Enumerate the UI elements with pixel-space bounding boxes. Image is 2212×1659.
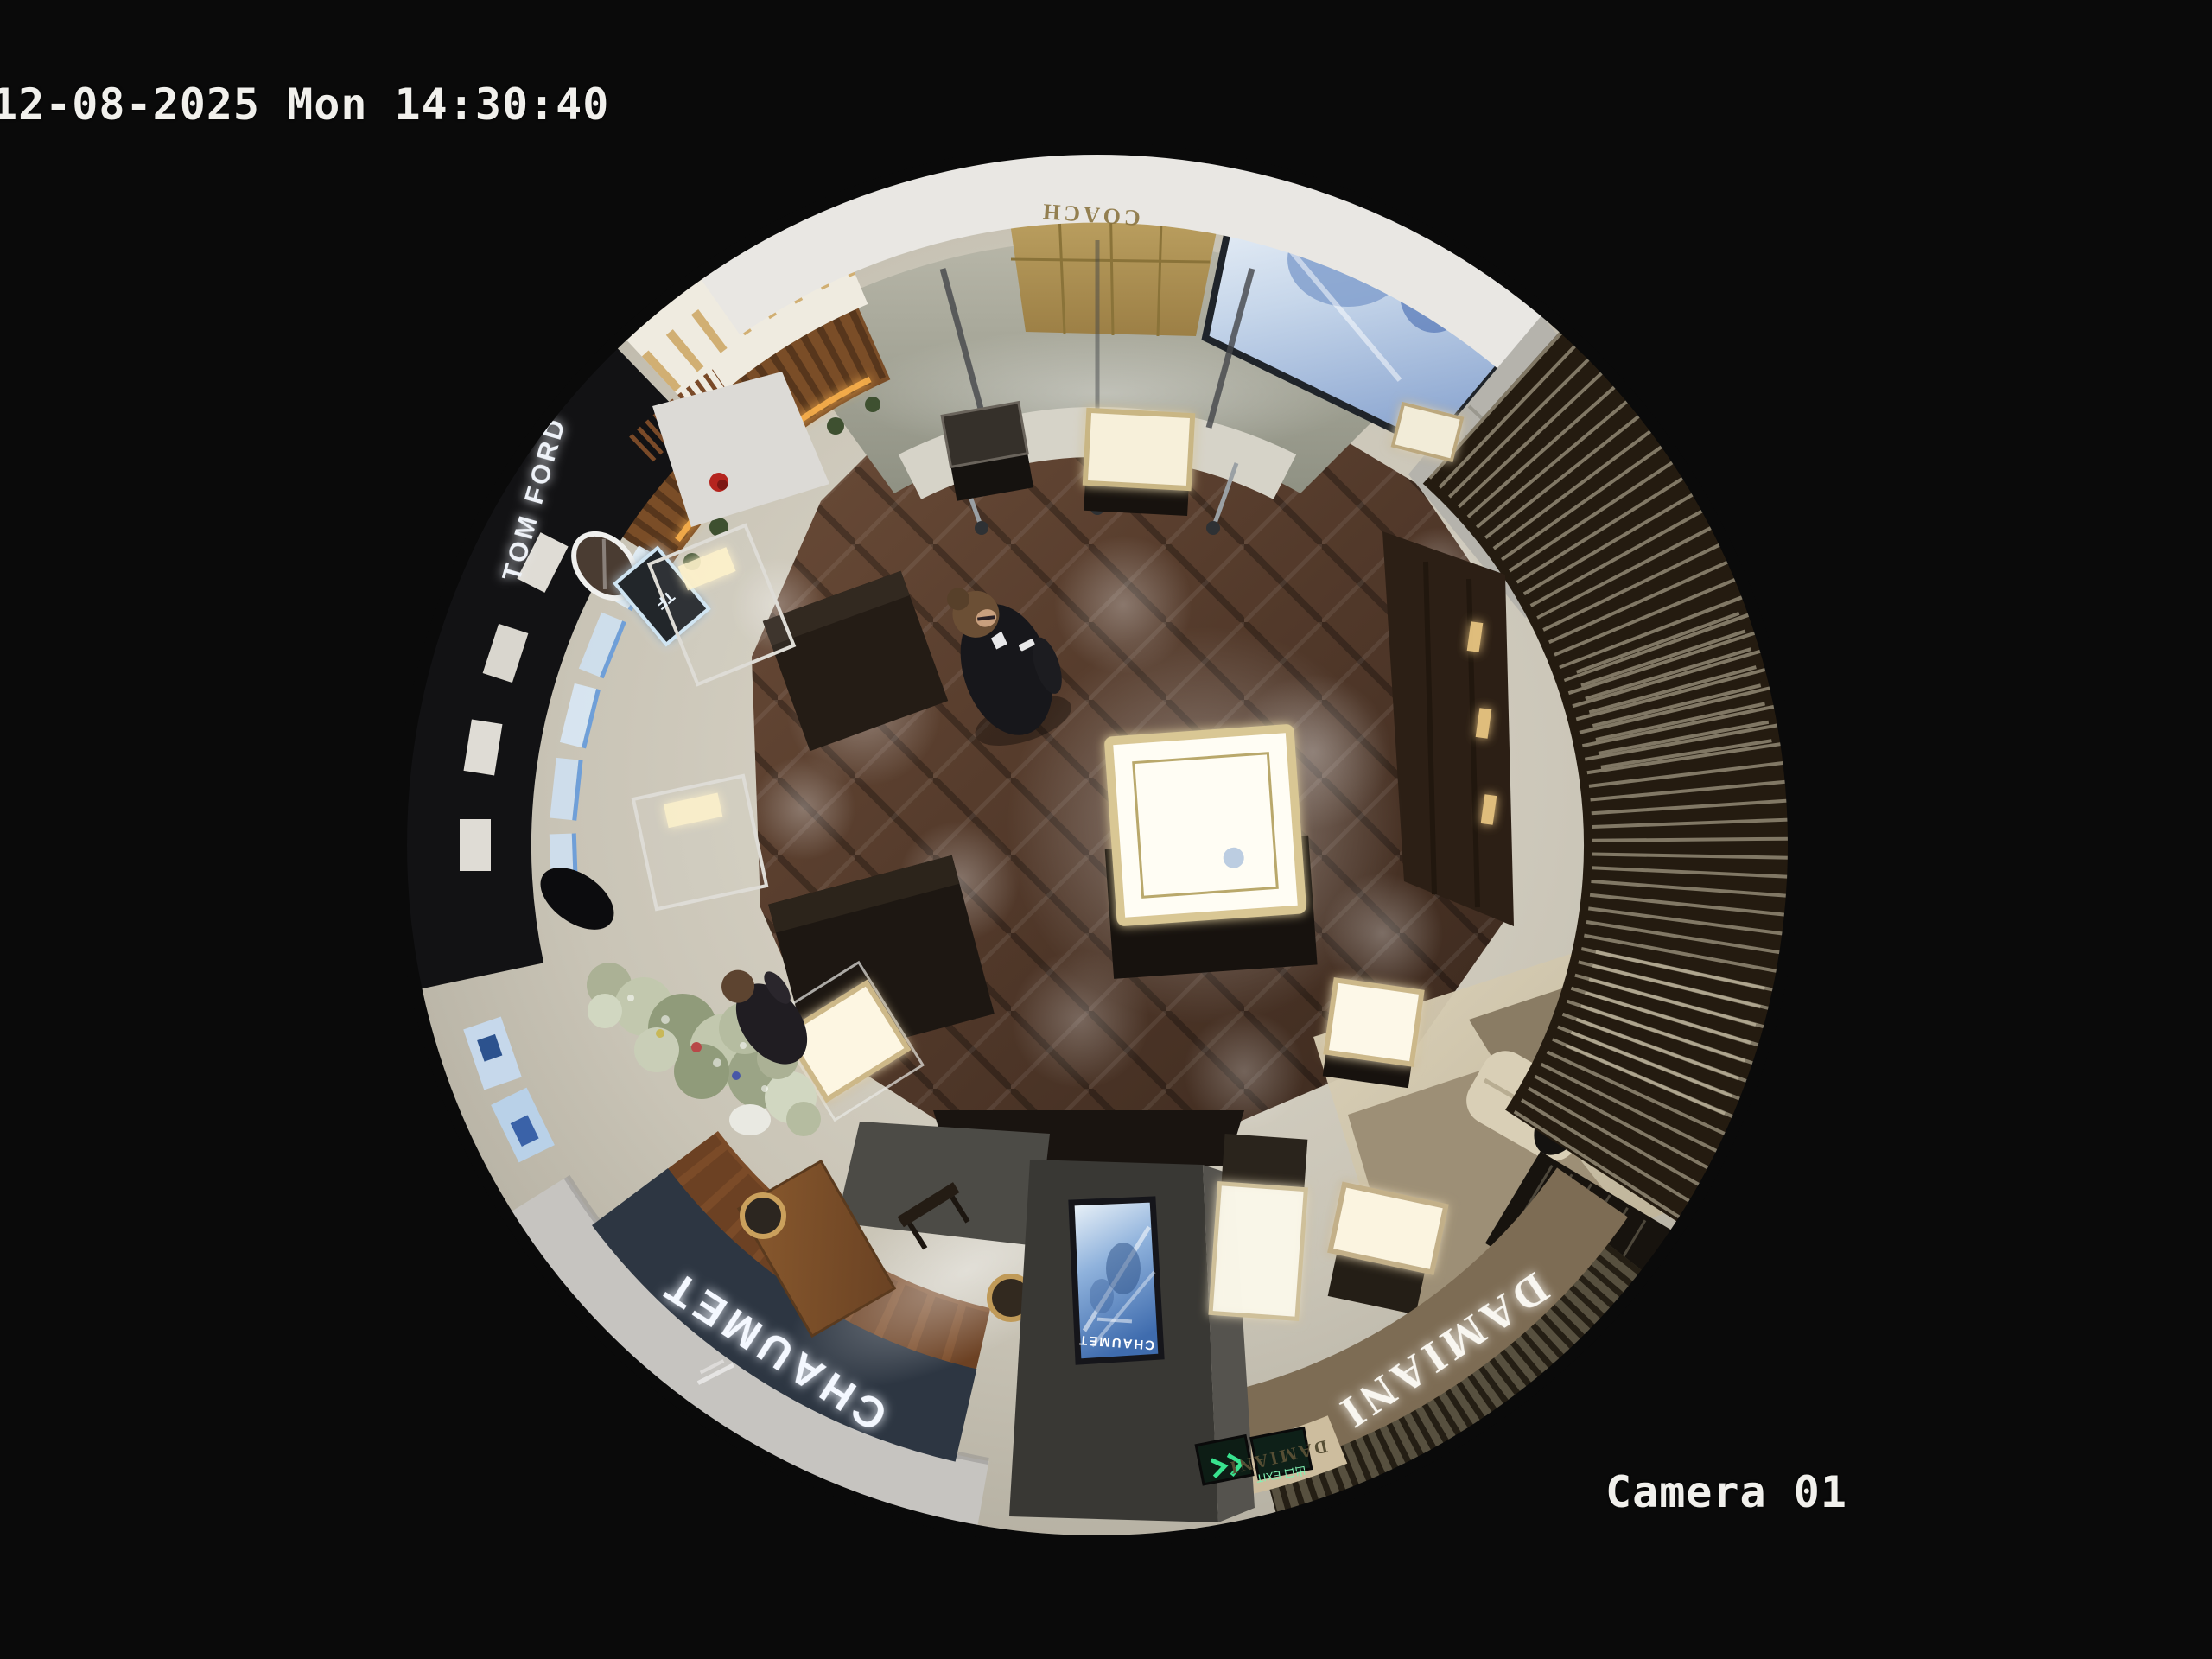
camera-label-overlay: Camera 01: [1605, 1467, 1847, 1517]
dark-top-case: [942, 403, 1033, 501]
cctv-viewer: CHAUMET DAMIANI TOM FORD TF COACH CHAUME…: [0, 0, 2212, 1659]
tree-pot: [729, 1104, 771, 1135]
fisheye-camera-view: CHAUMET DAMIANI TOM FORD TF COACH CHAUME…: [0, 0, 2212, 1659]
tall-vitrine: [633, 776, 766, 909]
timestamp-overlay: 12-08-2025 Mon 14:30:40: [0, 79, 609, 130]
vestibule-glass-case: [1211, 1134, 1309, 1319]
entrance-display-case: [1084, 410, 1192, 516]
stool: [742, 1195, 784, 1236]
right-display-case: [1323, 980, 1422, 1088]
fire-extinguisher: [709, 473, 728, 492]
